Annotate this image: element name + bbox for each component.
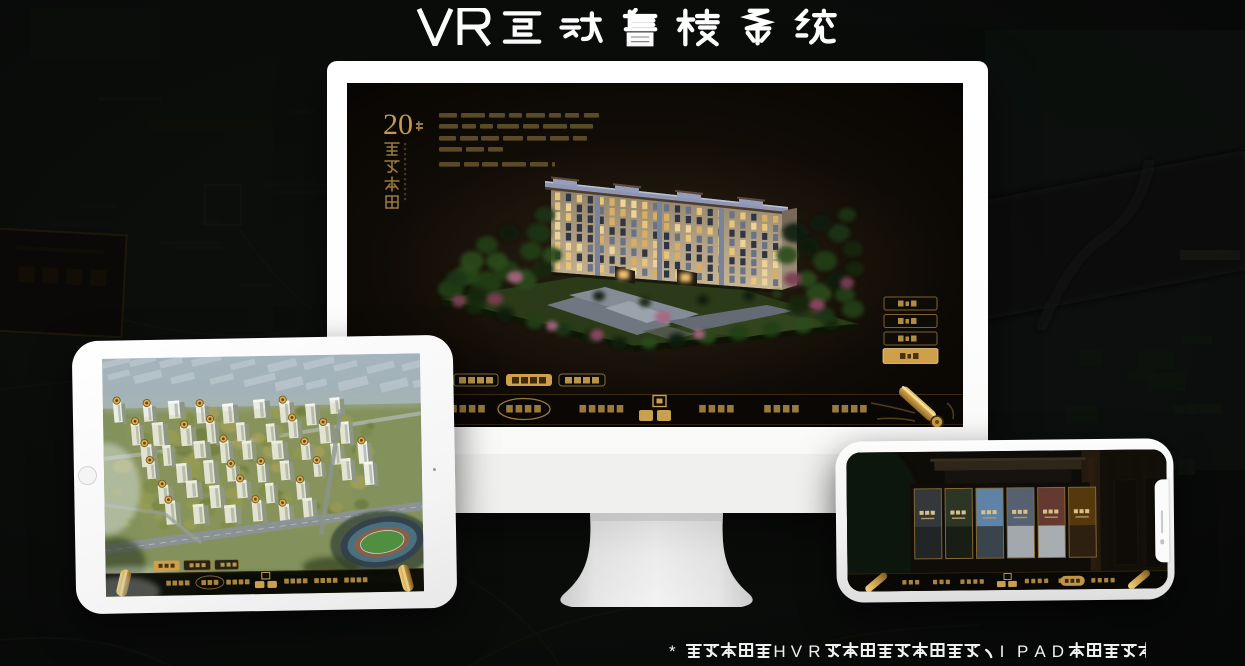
svg-text:*: *	[669, 642, 676, 661]
svg-text:D: D	[1052, 642, 1064, 661]
svg-text:A: A	[1034, 642, 1046, 661]
svg-text:20: 20	[383, 108, 413, 141]
svg-text:I: I	[1000, 642, 1005, 661]
svg-text:P: P	[1017, 642, 1028, 661]
svg-text:R: R	[808, 642, 820, 661]
svg-text:V: V	[791, 642, 803, 661]
svg-text:H: H	[773, 642, 785, 661]
